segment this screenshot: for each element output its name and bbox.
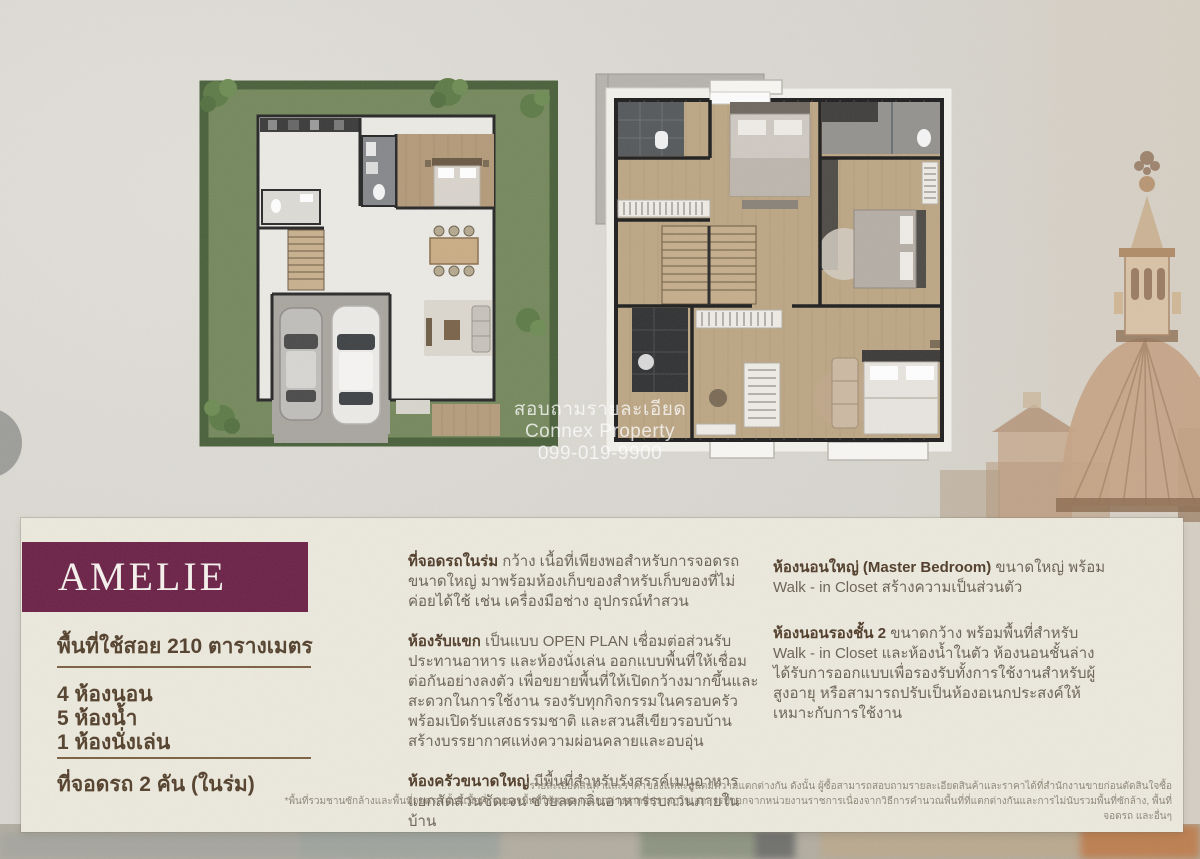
feature-parking: ที่จอดรถในร่ม กว้าง เนื้อที่เพียงพอสำหรั… [408,552,762,612]
watermark-line1: สอบถามรายละเอียด [470,399,730,421]
footnotes: *รายละเอียดสินค้าและราคาของแต่ละยูนิตมีค… [272,779,1172,824]
bathroom-left [262,190,320,224]
vanity [822,102,878,122]
spec-living-room: 1 ห้องนั่งเล่น [57,726,170,759]
feature-title: ที่จอดรถในร่ม [408,553,498,570]
brochure-page: สอบถามรายละเอียด Connex Property 099-019… [0,0,1200,859]
feature-title: ห้องรับแขก [408,633,481,650]
feature-secondary-bedrooms: ห้องนอนรองชั้น 2 ขนาดกว้าง พร้อมพื้นที่ส… [773,624,1111,724]
stairs [662,226,756,304]
living-room [424,300,492,356]
bathroom-upper-right [822,102,940,154]
watermark-line3: 099-019-9900 [470,443,730,465]
bed [425,158,489,206]
toilet [917,129,931,147]
nightstand [930,340,940,348]
divider [57,757,311,759]
model-name: AMELIE [22,542,308,612]
bathroom-upper-left [618,102,684,156]
info-panel: AMELIE พื้นที่ใช้สอย 210 ตารางเมตร 4 ห้อ… [21,518,1183,832]
washer [638,354,654,370]
kitchen-counter [260,118,360,132]
closet-rack [922,162,938,204]
model-title-box: AMELIE [22,542,308,612]
feature-master-bedroom: ห้องนอนใหญ่ (Master Bedroom) ขนาดใหญ่ พร… [773,558,1111,598]
car-silver [280,308,322,420]
sofa [472,306,490,352]
car-white [332,306,380,424]
coffee-table [444,320,460,340]
feature-title: ห้องนอนใหญ่ (Master Bedroom) [773,559,991,576]
bed [854,210,926,288]
footnote-line2: *พื้นที่รวมชานซักล้างและพื้นที่จอดรถ ทั้… [272,794,1172,824]
sofa [832,358,858,428]
divider [57,666,311,668]
watermark-line2: Connex Property [470,421,730,443]
bed [730,102,810,209]
bedroom-downstairs [396,134,494,208]
porch-step [396,400,430,414]
bathroom-dark [632,308,688,392]
spec-parking: ที่จอดรถ 2 คัน (ในร่ม) [57,768,255,801]
bed [862,350,940,434]
feature-text: เป็นแบบ OPEN PLAN เชื่อมต่อส่วนรับประทาน… [408,633,758,750]
bed-bench [742,200,798,209]
stairs [288,230,324,290]
background-painting-dome [930,0,1200,525]
dining-table [430,226,478,276]
feature-living: ห้องรับแขก เป็นแบบ OPEN PLAN เชื่อมต่อส่… [408,632,762,752]
watermark: สอบถามรายละเอียด Connex Property 099-019… [470,399,730,465]
bathroom-center [362,136,396,206]
floor-plan-ground [198,78,558,450]
carousel-prev-button[interactable] [0,408,22,478]
feature-title: ห้องนอนรองชั้น 2 [773,625,886,642]
closet-rack [618,200,710,217]
usable-area: พื้นที่ใช้สอย 210 ตารางเมตร [57,630,313,663]
toilet [655,131,668,149]
features-column-2: ห้องนอนใหญ่ (Master Bedroom) ขนาดใหญ่ พร… [773,558,1111,750]
tv-console [426,318,432,346]
footnote-line1: *รายละเอียดสินค้าและราคาของแต่ละยูนิตมีค… [272,779,1172,794]
